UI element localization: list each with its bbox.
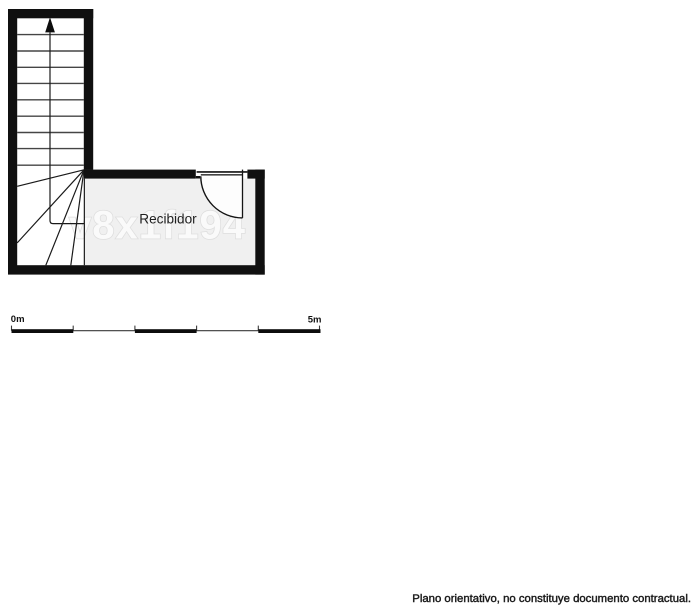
svg-text:0m: 0m [11, 314, 25, 325]
svg-text:Plano orientativo, no constitu: Plano orientativo, no constituye documen… [412, 593, 691, 605]
svg-text:Recibidor: Recibidor [139, 211, 197, 226]
svg-text:5m: 5m [308, 315, 322, 326]
